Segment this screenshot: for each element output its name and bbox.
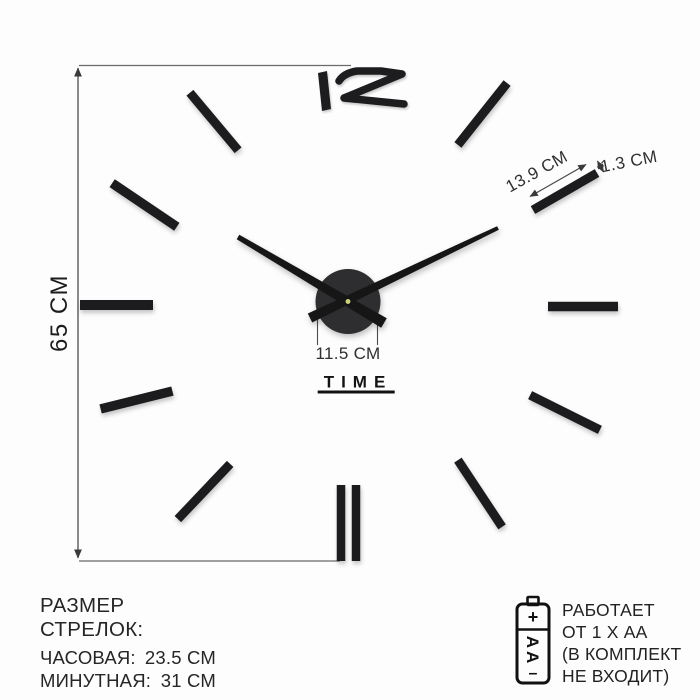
numeral-12 (318, 71, 404, 111)
battery-cell-label: АА (523, 636, 542, 667)
hand-sizes-block: РАЗМЕР СТРЕЛОК: ЧАСОВАЯ: 23.5 СМ МИНУТНА… (40, 594, 216, 692)
hour-marker-8 (99, 386, 173, 413)
battery-text-line-4: НЕ ВХОДИТ) (562, 665, 681, 687)
battery-text-line-1: РАБОТАЕТ (562, 599, 681, 621)
hour-marker-6a (337, 485, 346, 561)
battery-info-block: + АА – РАБОТАЕТ ОТ 1 Х АА (В КОМПЛЕКТ НЕ… (515, 595, 681, 687)
battery-text-line-3: (В КОМПЛЕКТ (562, 643, 681, 665)
hour-marker-6b (352, 485, 361, 561)
minute-hand-size-row: МИНУТНАЯ: 31 СМ (40, 670, 216, 693)
height-dimension-label: 65 СМ (46, 274, 74, 352)
hour-marker-10 (110, 179, 180, 230)
minute-hand-size-value: 31 СМ (161, 670, 216, 693)
hour-marker-3 (548, 302, 618, 312)
battery-text: РАБОТАЕТ ОТ 1 Х АА (В КОМПЛЕКТ НЕ ВХОДИТ… (562, 595, 681, 687)
hour-hand-size-label: ЧАСОВАЯ: (40, 647, 136, 670)
battery-minus-sign: – (529, 665, 538, 682)
battery-plus-sign: + (528, 607, 539, 627)
time-brand-sticker: TIME (318, 375, 395, 394)
center-pin (345, 299, 351, 305)
hub-width-dimension-label: 11.5 СМ (316, 344, 381, 364)
hour-marker-11 (186, 90, 241, 153)
clock-product-image: 65 СМ 13.9 СМ 1.3 СМ 11.5 СМ TIME РАЗМЕР… (0, 0, 700, 700)
hour-marker-9 (80, 300, 153, 310)
hour-marker-7 (175, 461, 234, 522)
numeral-12-stroke-2 (339, 71, 404, 104)
minute-hand-size-label: МИНУТНАЯ: (40, 670, 151, 693)
hour-marker-5 (454, 458, 506, 530)
battery-text-line-2: ОТ 1 Х АА (562, 621, 681, 643)
hour-hand-size-row: ЧАСОВАЯ: 23.5 СМ (40, 647, 216, 670)
hour-hand-size-value: 23.5 СМ (145, 647, 216, 670)
hour-marker-1 (454, 80, 510, 147)
numeral-12-stroke-1 (318, 71, 331, 111)
hand-sizes-title: РАЗМЕР СТРЕЛОК: (40, 594, 216, 642)
hour-marker-4 (528, 391, 602, 434)
battery-icon: + АА – (515, 595, 551, 685)
clock-mechanism (237, 226, 499, 334)
